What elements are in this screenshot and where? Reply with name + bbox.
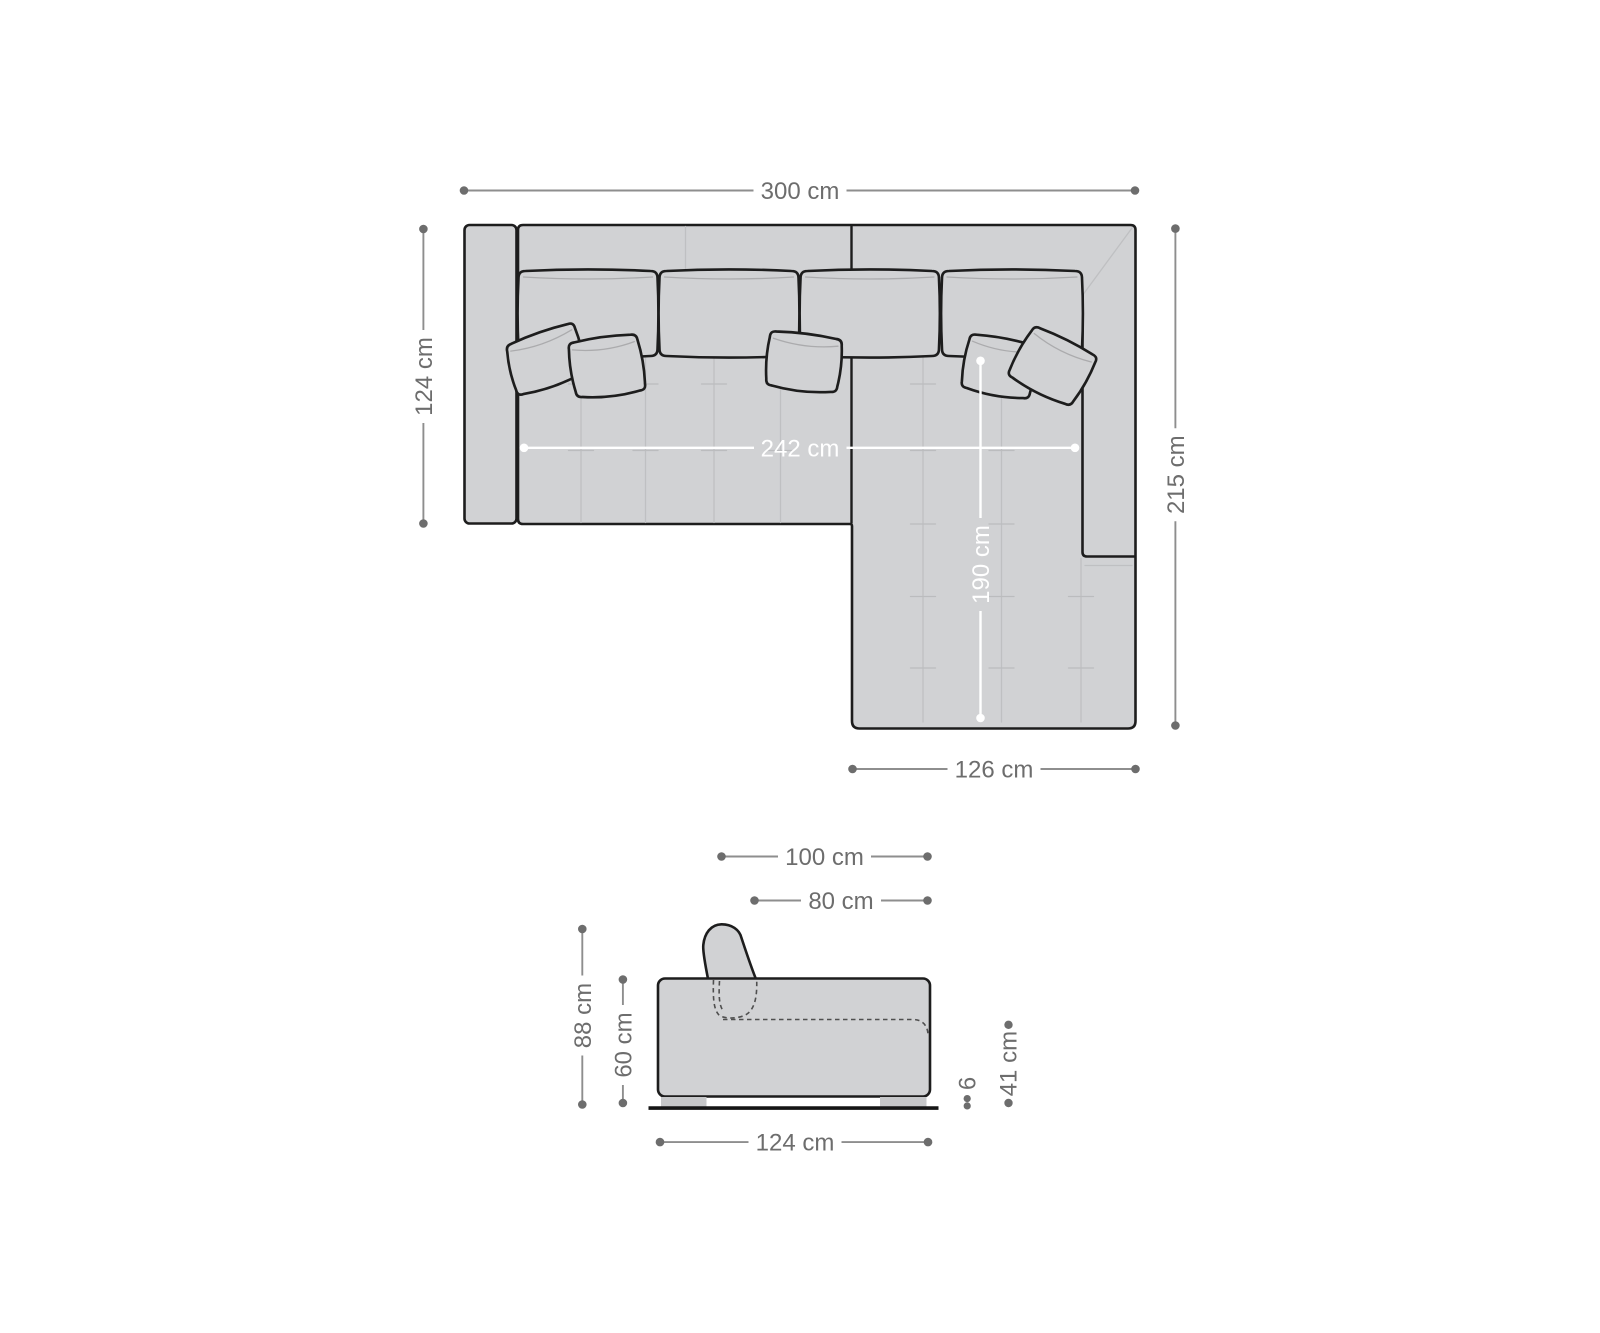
svg-text:41 cm: 41 cm bbox=[996, 1031, 1023, 1096]
svg-text:80 cm: 80 cm bbox=[808, 888, 873, 915]
svg-text:88 cm: 88 cm bbox=[570, 983, 597, 1048]
svg-text:242 cm: 242 cm bbox=[761, 435, 840, 462]
svg-text:126 cm: 126 cm bbox=[955, 757, 1034, 784]
svg-text:190 cm: 190 cm bbox=[968, 525, 995, 604]
svg-text:124 cm: 124 cm bbox=[756, 1130, 835, 1157]
svg-text:60 cm: 60 cm bbox=[610, 1012, 637, 1077]
svg-text:6: 6 bbox=[955, 1077, 982, 1090]
svg-text:100 cm: 100 cm bbox=[785, 844, 864, 871]
svg-text:124 cm: 124 cm bbox=[411, 337, 438, 416]
svg-text:215 cm: 215 cm bbox=[1163, 435, 1190, 514]
svg-text:300 cm: 300 cm bbox=[761, 178, 840, 205]
